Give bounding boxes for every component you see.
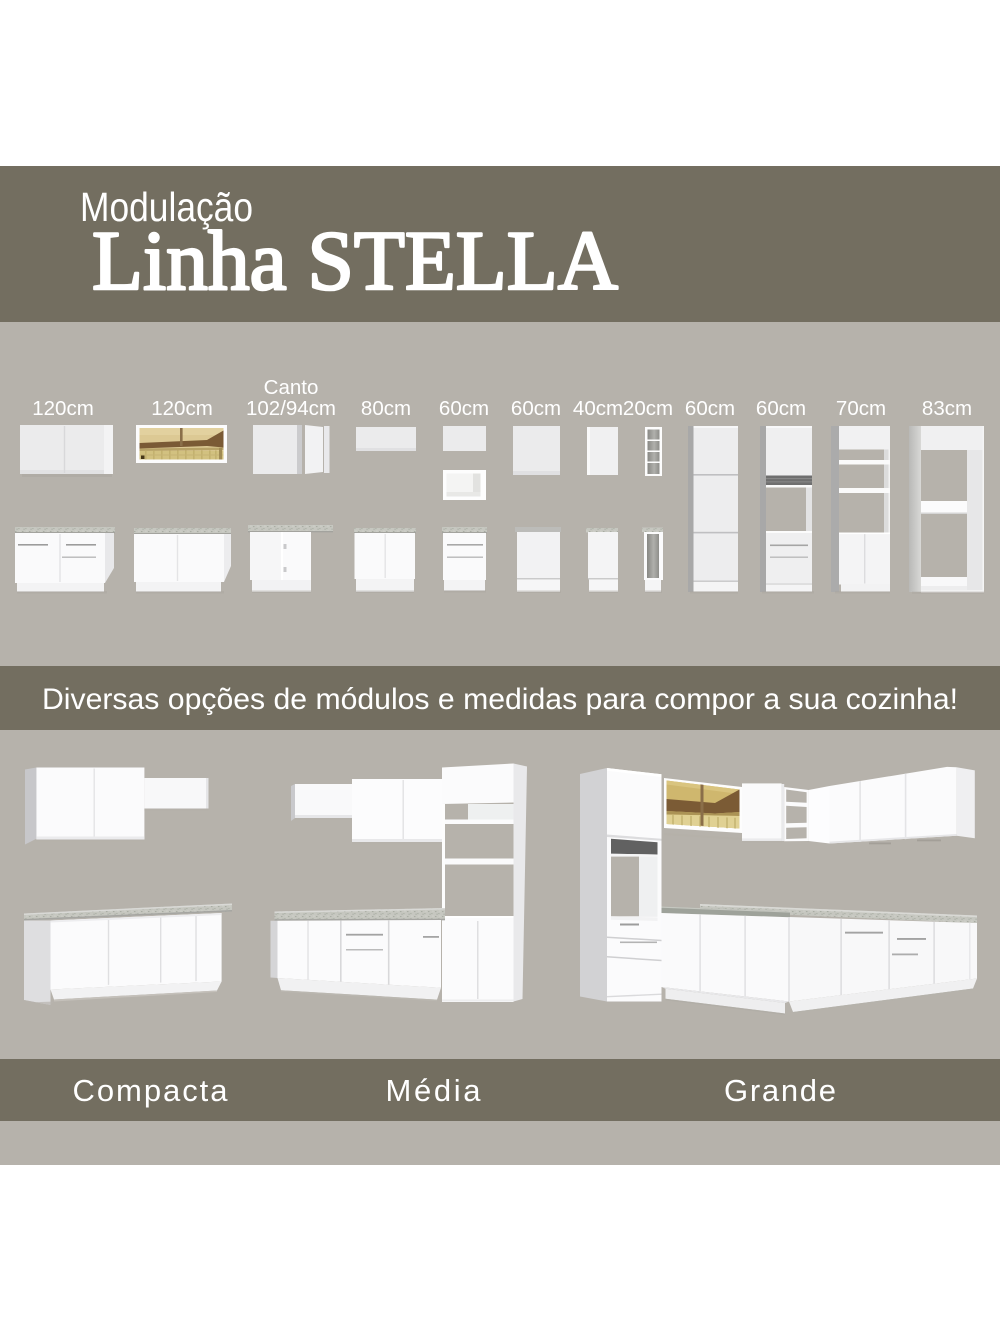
svg-text:60cm: 60cm bbox=[685, 397, 735, 420]
svg-text:83cm: 83cm bbox=[922, 397, 972, 420]
svg-text:Compacta: Compacta bbox=[73, 1073, 229, 1108]
svg-text:Diversas opções de módulos e m: Diversas opções de módulos e medidas par… bbox=[42, 683, 958, 716]
svg-text:Grande: Grande bbox=[724, 1073, 836, 1108]
svg-text:80cm: 80cm bbox=[361, 397, 411, 420]
svg-text:Canto: Canto bbox=[264, 376, 319, 399]
svg-text:60cm: 60cm bbox=[511, 397, 561, 420]
svg-text:20cm: 20cm bbox=[623, 397, 673, 420]
svg-text:Linha STELLA: Linha STELLA bbox=[92, 214, 618, 308]
svg-text:40cm: 40cm bbox=[573, 397, 623, 420]
svg-text:120cm: 120cm bbox=[151, 397, 213, 420]
svg-text:70cm: 70cm bbox=[836, 397, 886, 420]
svg-text:102/94cm: 102/94cm bbox=[246, 397, 336, 420]
svg-text:60cm: 60cm bbox=[756, 397, 806, 420]
svg-text:Média: Média bbox=[386, 1073, 482, 1108]
svg-text:120cm: 120cm bbox=[32, 397, 94, 420]
svg-text:60cm: 60cm bbox=[439, 397, 489, 420]
